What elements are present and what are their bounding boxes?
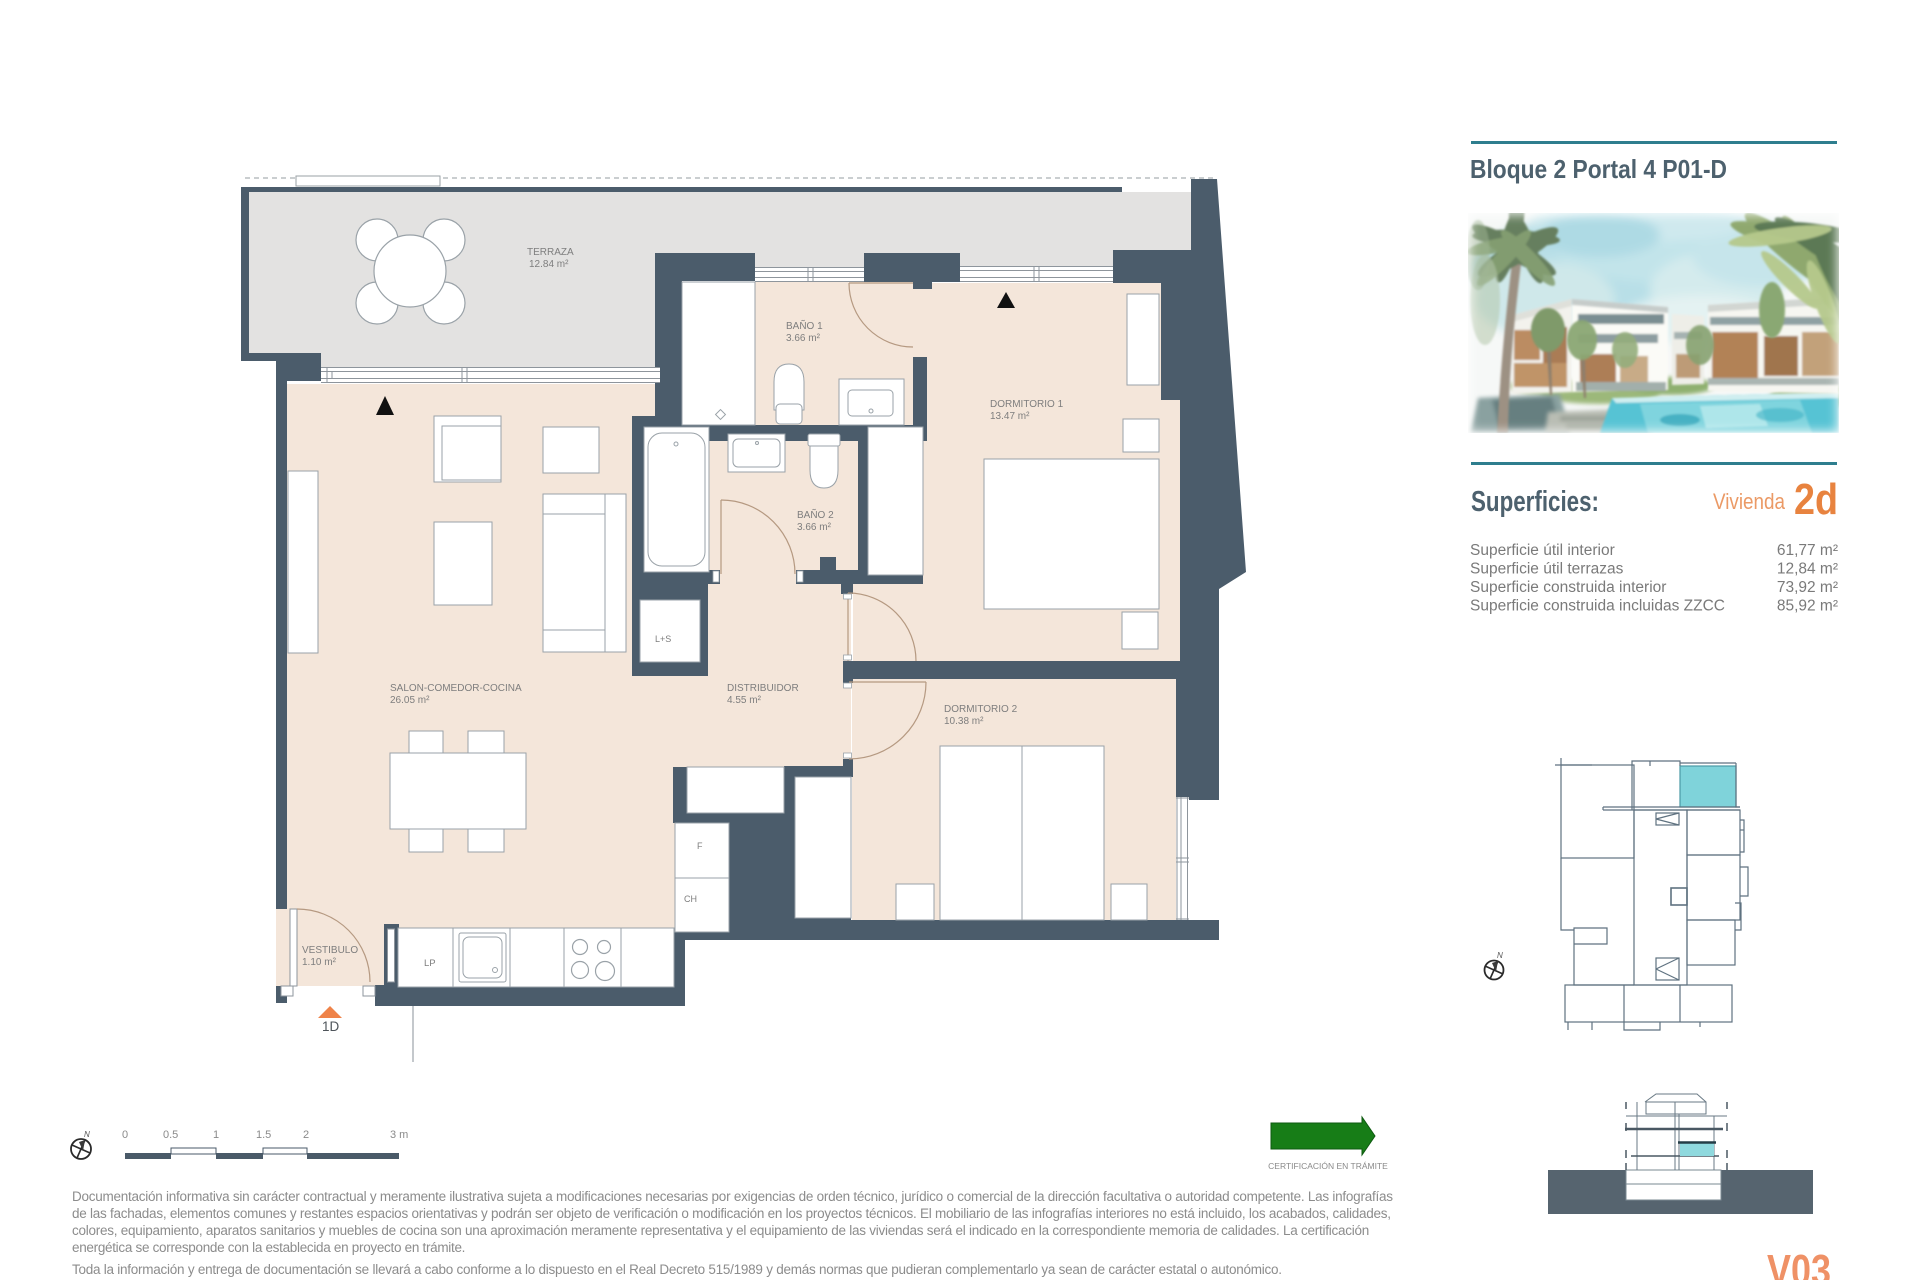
svg-text:1.5: 1.5 — [256, 1129, 271, 1141]
svg-text:BAÑO 1: BAÑO 1 — [786, 319, 823, 332]
svg-text:12,84 m²: 12,84 m² — [1777, 561, 1838, 578]
svg-text:Superficie construida interior: Superficie construida interior — [1470, 579, 1666, 596]
svg-text:73,92 m²: 73,92 m² — [1777, 579, 1838, 596]
svg-text:3.66 m²: 3.66 m² — [797, 522, 832, 533]
svg-text:1D: 1D — [322, 1019, 340, 1034]
svg-text:4.55 m²: 4.55 m² — [727, 695, 762, 706]
svg-text:Bloque 2 Portal 4 P01-D: Bloque 2 Portal 4 P01-D — [1470, 154, 1727, 184]
svg-text:de las fachadas, elementos com: de las fachadas, elementos comunes y res… — [72, 1206, 1391, 1221]
svg-text:85,92 m²: 85,92 m² — [1777, 598, 1838, 615]
svg-text:Superficie útil interior: Superficie útil interior — [1470, 542, 1615, 559]
svg-text:Superficie construida incluida: Superficie construida incluidas ZZCC — [1470, 598, 1725, 615]
svg-text:V03: V03 — [1767, 1246, 1831, 1280]
svg-text:Superficies:: Superficies: — [1471, 486, 1599, 518]
svg-text:N: N — [1497, 951, 1503, 960]
svg-text:0.5: 0.5 — [163, 1129, 178, 1141]
svg-text:energética se corresponde con: energética se corresponde con la estable… — [72, 1240, 465, 1255]
svg-text:VESTIBULO: VESTIBULO — [302, 945, 358, 956]
svg-text:Toda la información y entrega: Toda la información y entrega de documen… — [72, 1262, 1282, 1277]
svg-text:26.05 m²: 26.05 m² — [390, 695, 430, 706]
svg-text:2: 2 — [303, 1129, 309, 1141]
svg-text:3.66 m²: 3.66 m² — [786, 333, 821, 344]
svg-text:DISTRIBUIDOR: DISTRIBUIDOR — [727, 683, 799, 694]
svg-text:10.38 m²: 10.38 m² — [944, 716, 984, 727]
svg-text:SALON-COMEDOR-COCINA: SALON-COMEDOR-COCINA — [390, 683, 522, 694]
svg-text:BAÑO 2: BAÑO 2 — [797, 508, 834, 521]
svg-text:LP: LP — [424, 958, 436, 969]
svg-text:1.10 m²: 1.10 m² — [302, 957, 337, 968]
svg-text:Vivienda: Vivienda — [1713, 489, 1786, 514]
svg-text:13.47 m²: 13.47 m² — [990, 411, 1030, 422]
svg-text:Superficie útil terrazas: Superficie útil terrazas — [1470, 561, 1624, 578]
svg-text:61,77 m²: 61,77 m² — [1777, 542, 1838, 559]
svg-text:2d: 2d — [1794, 475, 1838, 524]
svg-text:N: N — [84, 1130, 90, 1139]
svg-text:DORMITORIO 1: DORMITORIO 1 — [990, 399, 1064, 410]
svg-text:12.84 m²: 12.84 m² — [529, 259, 569, 270]
svg-text:CH: CH — [684, 894, 697, 904]
svg-text:3 m: 3 m — [390, 1129, 408, 1141]
svg-text:colores, equipamiento, aparato: colores, equipamiento, aparatos sanitari… — [72, 1223, 1369, 1238]
svg-text:L+S: L+S — [655, 634, 671, 644]
svg-text:CERTIFICACIÓN EN TRÁMITE: CERTIFICACIÓN EN TRÁMITE — [1268, 1161, 1388, 1171]
svg-text:1: 1 — [213, 1129, 219, 1141]
svg-text:TERRAZA: TERRAZA — [527, 247, 574, 258]
svg-text:Documentación informativa sin: Documentación informativa sin carácter c… — [72, 1189, 1393, 1204]
svg-text:0: 0 — [122, 1129, 128, 1141]
svg-text:DORMITORIO 2: DORMITORIO 2 — [944, 704, 1018, 715]
svg-text:F: F — [697, 841, 703, 851]
